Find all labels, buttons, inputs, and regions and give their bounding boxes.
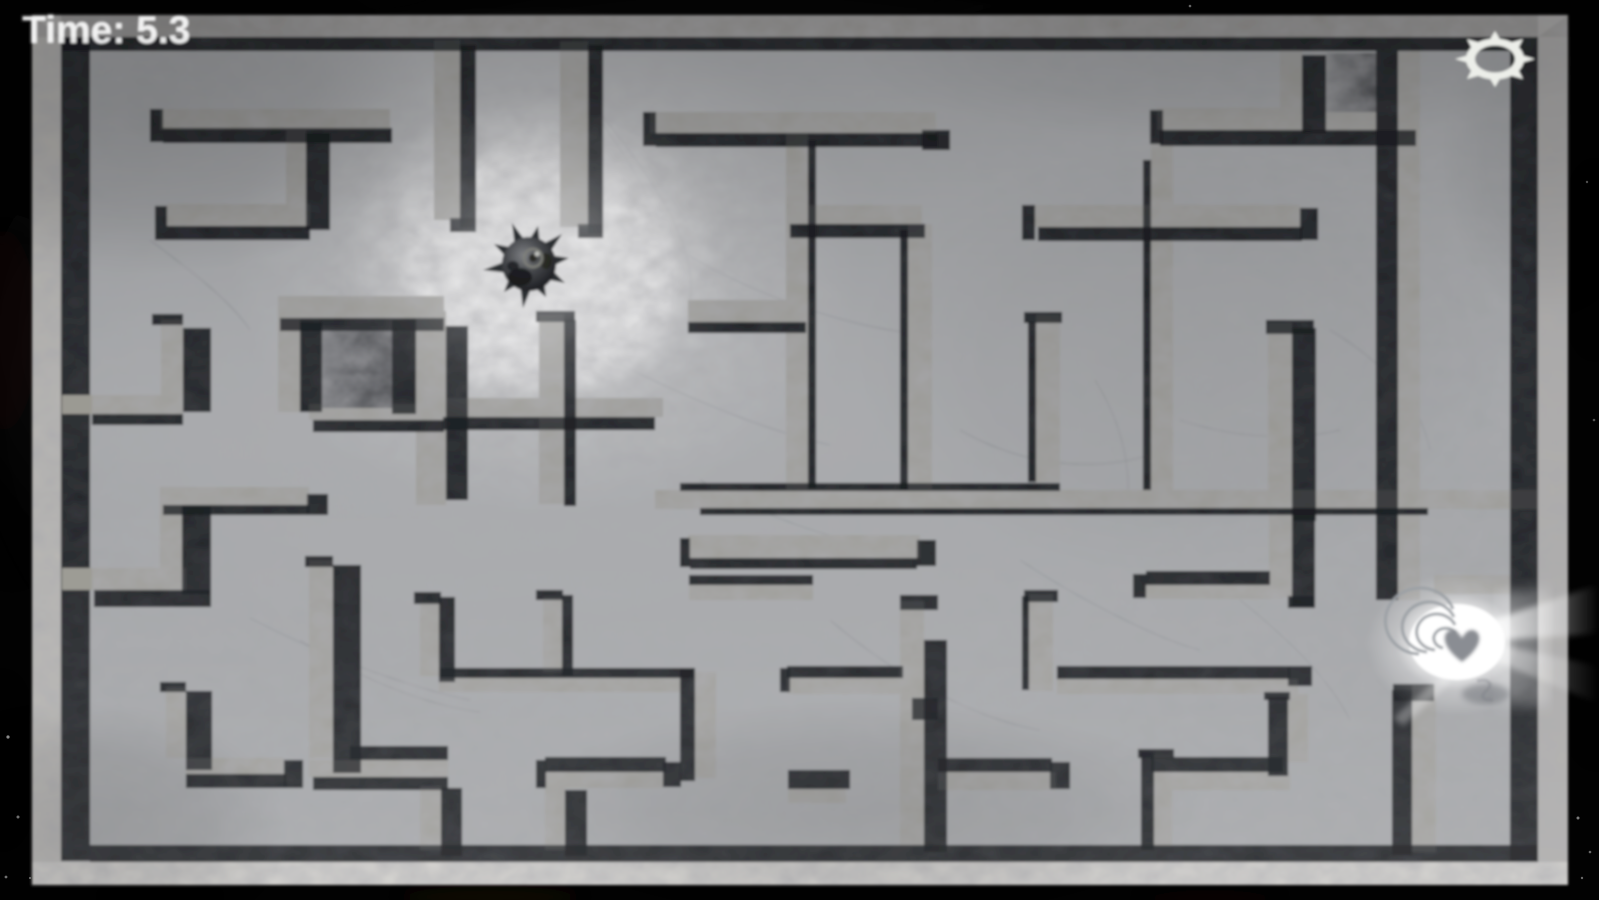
svg-text:Time: 5.3: Time: 5.3 bbox=[22, 9, 190, 52]
